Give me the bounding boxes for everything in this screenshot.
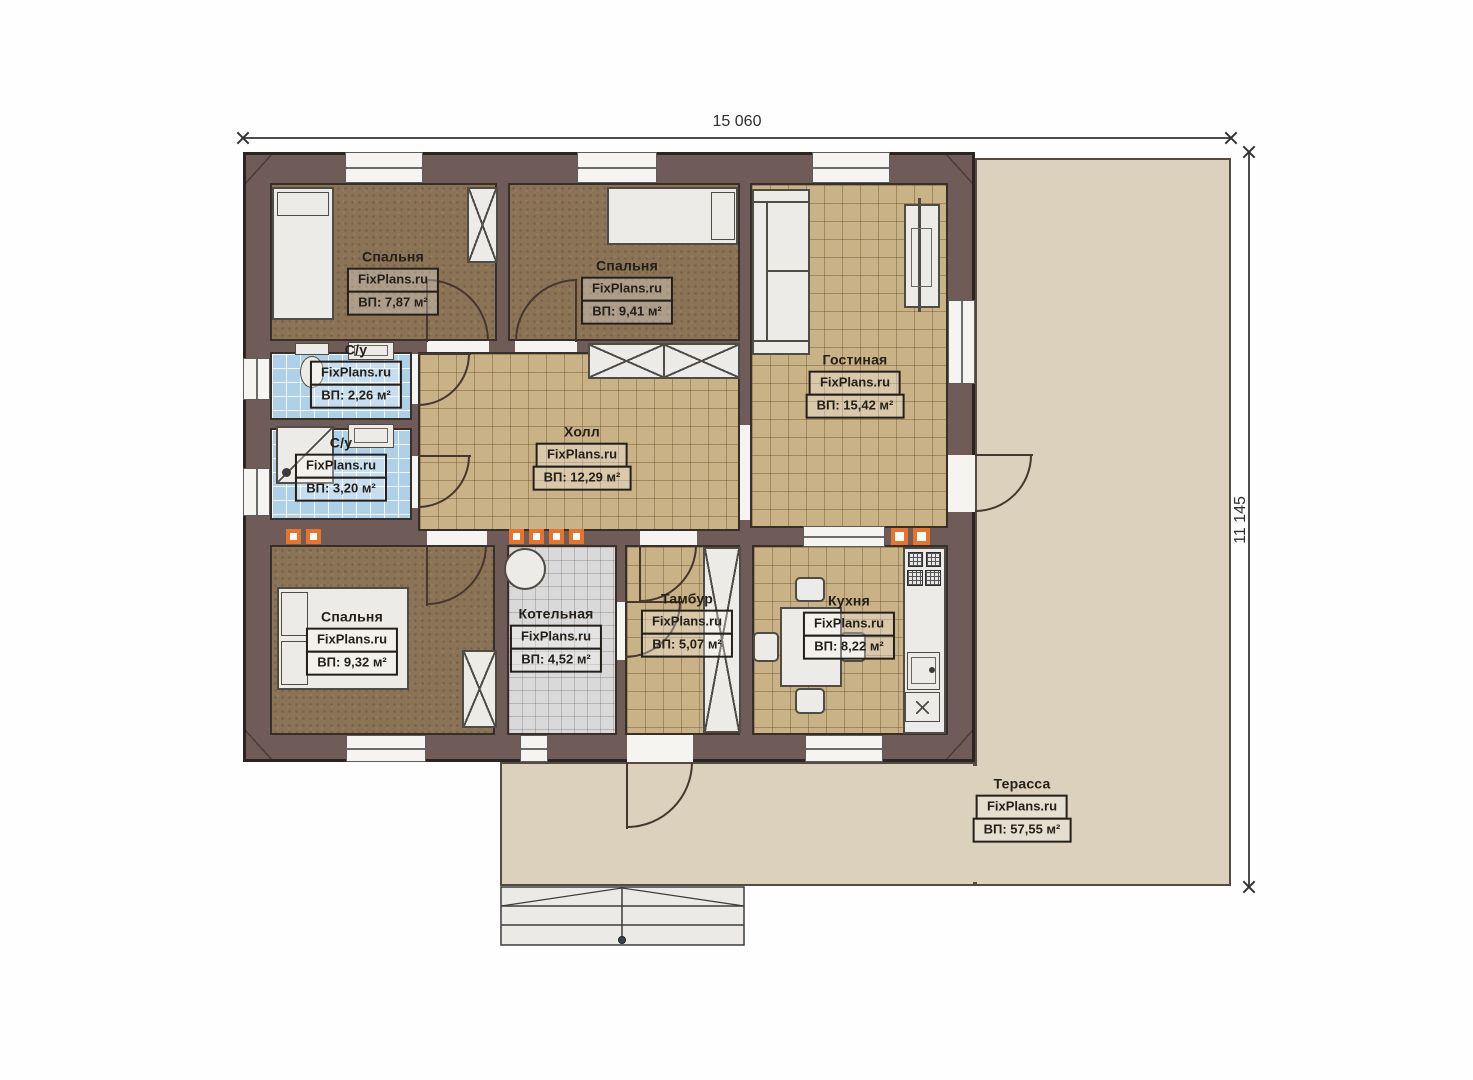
chair <box>795 688 825 714</box>
room-area: ВП: 5,07 м² <box>641 633 733 658</box>
room-label-bedroom-2: Спальня FixPlans.ru ВП: 9,41 м² <box>581 258 673 325</box>
room-area: ВП: 2,26 м² <box>310 384 402 409</box>
pillow <box>711 192 735 240</box>
door-opening <box>427 341 489 352</box>
room-name: Спальня <box>321 609 383 625</box>
stove-burner <box>925 570 941 586</box>
brand-watermark: FixPlans.ru <box>809 371 901 396</box>
door-leaf <box>626 762 628 829</box>
pillow <box>281 592 308 636</box>
chair <box>753 632 779 662</box>
room-name: Холл <box>564 424 600 440</box>
wall-corner <box>946 154 973 184</box>
brand-watermark: FixPlans.ru <box>310 361 402 386</box>
room-area: ВП: 8,22 м² <box>803 635 895 660</box>
vent-marker <box>549 529 564 544</box>
room-label-bathroom-1: С/у FixPlans.ru ВП: 2,26 м² <box>310 342 402 409</box>
room-area: ВП: 12,29 м² <box>533 466 632 491</box>
dishwasher-mark <box>916 701 929 714</box>
vent-marker <box>891 528 908 545</box>
brand-watermark: FixPlans.ru <box>581 277 673 302</box>
floor-plan: 15 060 11 145 <box>0 0 1473 1080</box>
stove-burner <box>926 552 941 567</box>
terrace-area <box>500 762 975 886</box>
room-name: Кухня <box>828 593 870 609</box>
wardrobe <box>588 343 665 379</box>
stove-burner <box>907 570 923 586</box>
room-label-bedroom-1: Спальня FixPlans.ru ВП: 7,87 м² <box>347 249 439 316</box>
door-opening <box>627 735 693 762</box>
room-area: ВП: 57,55 м² <box>973 818 1072 843</box>
tv-unit <box>911 228 932 287</box>
door-leaf <box>975 454 1033 456</box>
window <box>243 468 270 516</box>
room-label-living-room: Гостиная FixPlans.ru ВП: 15,42 м² <box>806 352 905 419</box>
brand-watermark: FixPlans.ru <box>803 612 895 637</box>
sofa-cushion-divider <box>768 270 810 272</box>
shower-drain <box>282 468 291 477</box>
pillow <box>277 192 329 216</box>
room-label-bedroom-3: Спальня FixPlans.ru ВП: 9,32 м² <box>306 609 398 676</box>
door-opening <box>948 455 975 512</box>
stove-burner <box>908 552 923 567</box>
sofa <box>752 189 810 355</box>
room-name: Спальня <box>596 258 658 274</box>
door-leaf <box>418 455 471 457</box>
entrance-steps <box>500 886 745 946</box>
vent-marker <box>286 529 301 544</box>
room-name: Терасса <box>994 776 1051 792</box>
room-area: ВП: 9,32 м² <box>306 651 398 676</box>
window <box>346 735 426 762</box>
vent-marker <box>529 529 544 544</box>
brand-watermark: FixPlans.ru <box>347 268 439 293</box>
door-leaf <box>426 545 428 606</box>
brand-watermark: FixPlans.ru <box>306 628 398 653</box>
room-name: Гостиная <box>823 352 888 368</box>
room-name: С/у <box>345 342 367 358</box>
door-leaf <box>418 353 471 355</box>
vent-marker <box>306 529 321 544</box>
room-label-boiler-room: Котельная FixPlans.ru ВП: 4,52 м² <box>510 606 602 673</box>
window <box>948 300 975 384</box>
brand-watermark: FixPlans.ru <box>976 795 1068 820</box>
wall-corner <box>245 730 272 760</box>
room-name: Котельная <box>518 606 593 622</box>
vent-marker <box>913 528 930 545</box>
wardrobe <box>462 650 497 728</box>
pass-through-window <box>803 526 885 547</box>
door-opening <box>740 425 750 520</box>
door-opening <box>515 341 577 352</box>
window <box>577 152 657 183</box>
dimension-width-label: 15 060 <box>713 113 762 131</box>
room-area: ВП: 7,87 м² <box>347 291 439 316</box>
door-opening <box>640 531 697 545</box>
vent-marker <box>509 529 524 544</box>
wall-corner <box>946 730 973 760</box>
room-label-kitchen: Кухня FixPlans.ru ВП: 8,22 м² <box>803 593 895 660</box>
boiler <box>504 548 546 590</box>
room-area: ВП: 15,42 м² <box>806 394 905 419</box>
room-area: ВП: 9,41 м² <box>581 300 673 325</box>
vent-marker <box>569 529 584 544</box>
window <box>345 152 423 183</box>
door-leaf <box>575 279 577 342</box>
kitchen-faucet <box>929 667 935 673</box>
pillow <box>281 641 308 685</box>
room-label-hall: Холл FixPlans.ru ВП: 12,29 м² <box>533 424 632 491</box>
dimension-line-top <box>243 137 1231 139</box>
room-label-bathroom-2: С/у FixPlans.ru ВП: 3,20 м² <box>295 435 387 502</box>
door-opening <box>617 602 625 660</box>
window <box>812 152 890 183</box>
brand-watermark: FixPlans.ru <box>536 443 628 468</box>
room-area: ВП: 4,52 м² <box>510 648 602 673</box>
room-label-vestibule: Тамбур FixPlans.ru ВП: 5,07 м² <box>641 591 733 658</box>
room-area: ВП: 3,20 м² <box>295 477 387 502</box>
window <box>805 735 883 762</box>
sofa-armrest <box>752 340 810 342</box>
brand-watermark: FixPlans.ru <box>295 454 387 479</box>
window <box>243 358 270 400</box>
wardrobe <box>467 187 498 263</box>
sofa-armrest <box>752 201 810 203</box>
brand-watermark: FixPlans.ru <box>641 610 733 635</box>
door-opening <box>427 531 487 545</box>
wall-corner <box>245 154 272 184</box>
wardrobe <box>663 343 740 379</box>
brand-watermark: FixPlans.ru <box>510 625 602 650</box>
room-name: Спальня <box>362 249 424 265</box>
room-name: Тамбур <box>661 591 713 607</box>
room-label-terrace: Терасса FixPlans.ru ВП: 57,55 м² <box>973 776 1072 843</box>
sofa-back <box>766 202 768 342</box>
window <box>520 735 548 762</box>
dimension-line-right <box>1248 152 1250 887</box>
room-name: С/у <box>330 435 352 451</box>
